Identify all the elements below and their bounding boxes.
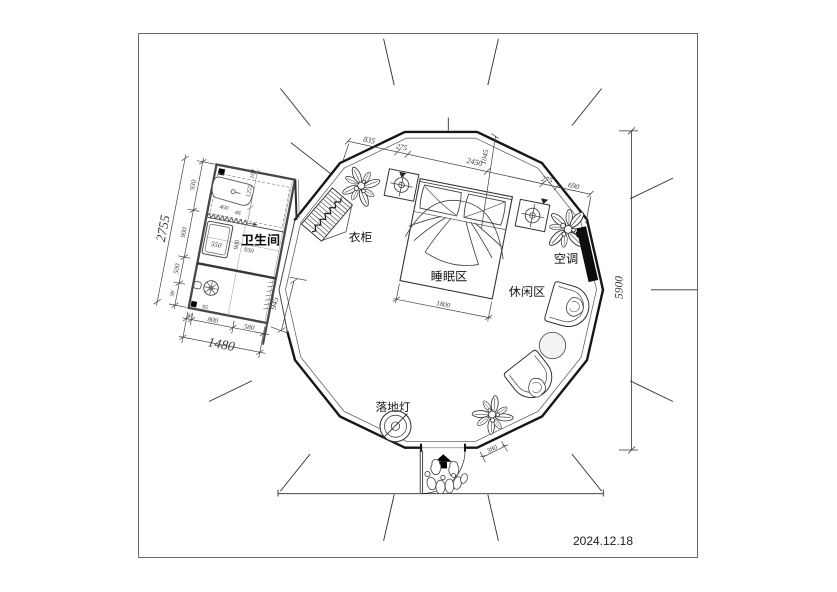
svg-text:835: 835 — [362, 135, 376, 146]
svg-text:500: 500 — [172, 262, 182, 274]
svg-text:800: 800 — [207, 315, 219, 325]
svg-text:1800: 1800 — [436, 299, 452, 310]
svg-text:1045: 1045 — [479, 148, 491, 165]
svg-text:945: 945 — [268, 296, 281, 311]
svg-text:275: 275 — [395, 141, 408, 152]
svg-text:1480: 1480 — [207, 334, 237, 354]
svg-text:900: 900 — [179, 226, 189, 238]
svg-text:95: 95 — [201, 304, 208, 311]
svg-text:930: 930 — [188, 179, 198, 191]
svg-text:2024.12.18: 2024.12.18 — [573, 534, 633, 548]
svg-text:98: 98 — [170, 290, 177, 297]
svg-text:580: 580 — [243, 322, 255, 332]
svg-text:5900: 5900 — [614, 276, 626, 299]
svg-text:380: 380 — [485, 443, 499, 456]
